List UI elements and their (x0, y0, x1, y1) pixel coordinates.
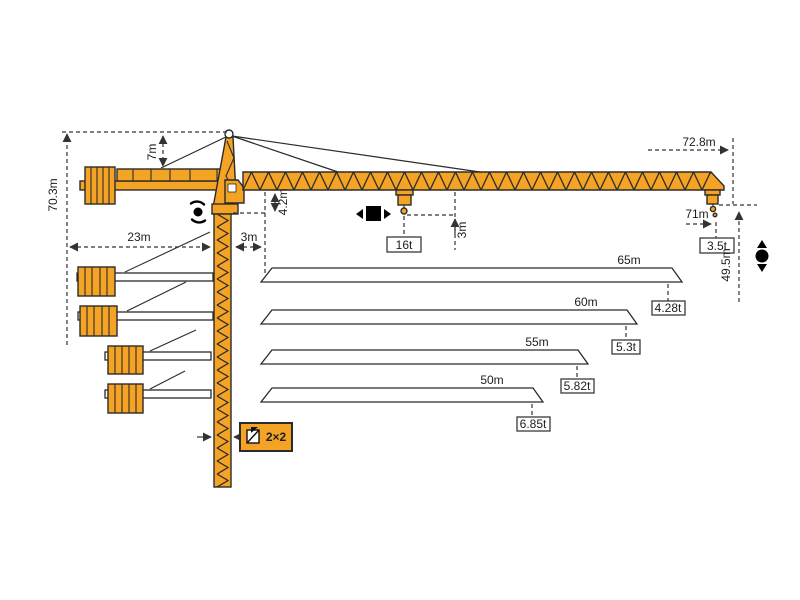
jib-option-60m-length: 60m (574, 295, 597, 309)
apex-pulley (225, 130, 233, 138)
jib-option-60m: 60m 5.3t (261, 295, 640, 354)
jib-option-50m-length: 50m (480, 373, 503, 387)
operator-cab (225, 180, 244, 203)
jib-option-55m: 55m 5.82t (261, 335, 594, 393)
jib-option-65m: 65m 4.28t (261, 253, 685, 315)
jib-option-60m-capacity: 5.3t (616, 340, 637, 354)
hoist-up-down-icon (756, 240, 769, 272)
jib-section-depth-label: 4.2m (276, 189, 290, 216)
head-height-label: 7m (145, 144, 159, 161)
tie-cables (161, 136, 487, 173)
crane-diagram: 70.3m 7m 23m 3m 4.2m 16t 3m 72.8m 71m (0, 0, 800, 600)
jib-option-50m: 50m 6.85t (261, 373, 550, 431)
mast-cross-section-icon (247, 427, 259, 443)
slewing-rotation-icon (191, 202, 205, 223)
max-radius-label: 72.8m (682, 135, 715, 149)
dim-tip-hook-radius: 71m (685, 207, 711, 224)
counterweight-config-55m (105, 330, 211, 374)
dim-total-height: 70.3m (46, 134, 67, 345)
dim-head-height: 7m (145, 136, 163, 166)
mast (214, 214, 231, 487)
counterweight-config-50m (105, 371, 211, 413)
tip-hook-radius-label: 71m (685, 207, 708, 221)
jib-option-65m-capacity: 4.28t (655, 301, 682, 315)
jib-root-offset-label: 3m (241, 230, 258, 244)
counterweight-ballast (85, 167, 115, 204)
counter-jib-radius-label: 23m (127, 230, 150, 244)
dim-jib-section-depth: 4.2m (275, 189, 290, 216)
max-load-callout: 16t (387, 216, 421, 252)
hook-drop-label: 3m (455, 222, 469, 239)
dim-hook-height: 49.5m (719, 212, 739, 302)
jib (243, 172, 724, 190)
trolley-travel-icon (356, 206, 391, 221)
jib-option-65m-length: 65m (617, 253, 640, 267)
trolley-hook-mid (396, 190, 413, 214)
mast-section-label: 2×2 (266, 430, 287, 444)
crane-diagram-page: 70.3m 7m 23m 3m 4.2m 16t 3m 72.8m 71m (0, 0, 800, 600)
crane-structure (77, 130, 724, 487)
mast-section-callout: 2×2 (197, 423, 292, 451)
total-height-label: 70.3m (46, 178, 60, 211)
dim-counter-jib-radius: 23m (70, 230, 210, 247)
max-load-value: 16t (396, 238, 413, 252)
jib-option-55m-capacity: 5.82t (564, 379, 591, 393)
hook-height-label: 49.5m (719, 248, 733, 281)
dim-max-radius: 72.8m (648, 135, 728, 150)
jib-option-55m-length: 55m (525, 335, 548, 349)
counter-jib (80, 167, 232, 204)
dim-jib-root-offset: 3m (236, 230, 261, 247)
jib-option-50m-capacity: 6.85t (520, 417, 547, 431)
dim-hook-drop: 3m (455, 192, 469, 250)
